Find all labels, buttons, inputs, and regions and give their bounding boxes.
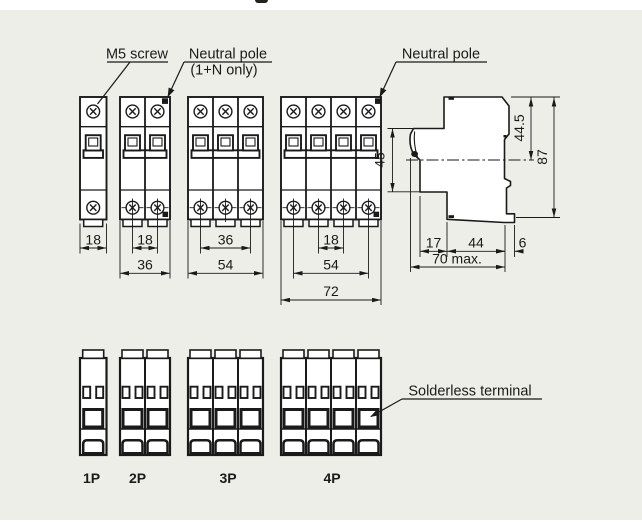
screw-icon [87, 201, 100, 214]
top-tick [449, 97, 455, 100]
neutral-pole-marker [163, 212, 169, 217]
front-view-1p [80, 97, 107, 227]
dim-1p-width: 18 [85, 232, 101, 248]
screw-icon [287, 105, 300, 118]
dim-total-height: 87 [534, 149, 550, 165]
dim-upper-height: 44.5 [511, 114, 527, 141]
front-view-3p [188, 97, 263, 227]
bottom-view-1p [80, 350, 107, 455]
screw-icon [87, 105, 100, 118]
dimension-drawing: 18 18 36 18 36 54 54 72 [0, 0, 642, 532]
screw-icon [126, 105, 139, 118]
breaker-dimension-figure: 18 18 36 18 36 54 54 72 [0, 0, 642, 532]
dim-rear-depth: 6 [519, 235, 527, 251]
neutral-pole-marker [162, 98, 168, 104]
neutral-pole-2p-leader [168, 62, 184, 97]
pole-label-2p: 2P [129, 470, 146, 486]
screw-icon [337, 105, 350, 118]
screw-icon [362, 105, 375, 118]
neutral-pole-marker [374, 212, 380, 217]
dim-front-height: 45 [372, 152, 388, 168]
dim-4p-pitch: 18 [323, 232, 339, 248]
screw-icon [151, 105, 164, 118]
neutral-pole-2p-label: Neutral pole [189, 47, 267, 63]
front-view-2p [120, 97, 170, 227]
screw-icon [312, 105, 325, 118]
dim-body-depth: 44 [468, 235, 484, 251]
neutral-pole-4p-leader [380, 62, 396, 97]
neutral-pole-marker [375, 98, 381, 104]
dim-4p-width: 72 [323, 283, 339, 299]
dim-2p-width: 36 [137, 257, 153, 273]
bottom-tick [449, 215, 455, 218]
bottom-view-2p [120, 350, 170, 455]
pole-label-1p: 1P [83, 470, 100, 486]
bottom-view-3p [188, 350, 263, 455]
dim-3p-width: 54 [218, 257, 234, 273]
bottom-view-4p [281, 350, 381, 455]
pole-label-4p: 4P [323, 470, 340, 486]
m5-screw-label: M5 screw [106, 47, 169, 63]
neutral-pole-2p-sublabel: (1+N only) [190, 63, 257, 79]
pole-label-3p: 3P [219, 470, 236, 486]
toggle-knob [411, 151, 418, 157]
dim-2p-pitch: 18 [137, 232, 153, 248]
dim-4p-outer-pitch: 54 [323, 257, 339, 273]
dim-3p-outer-pitch: 36 [218, 232, 234, 248]
neutral-pole-4p-label: Neutral pole [402, 47, 480, 63]
screw-icon [219, 105, 232, 118]
screw-icon [244, 105, 257, 118]
edge-tick [504, 135, 507, 138]
dim-front-depth: 17 [426, 235, 442, 251]
front-view-4p [281, 97, 381, 227]
solderless-terminal-label: Solderless terminal [408, 384, 531, 400]
dim-total-depth: 70 max. [432, 251, 482, 267]
screw-icon [194, 105, 207, 118]
